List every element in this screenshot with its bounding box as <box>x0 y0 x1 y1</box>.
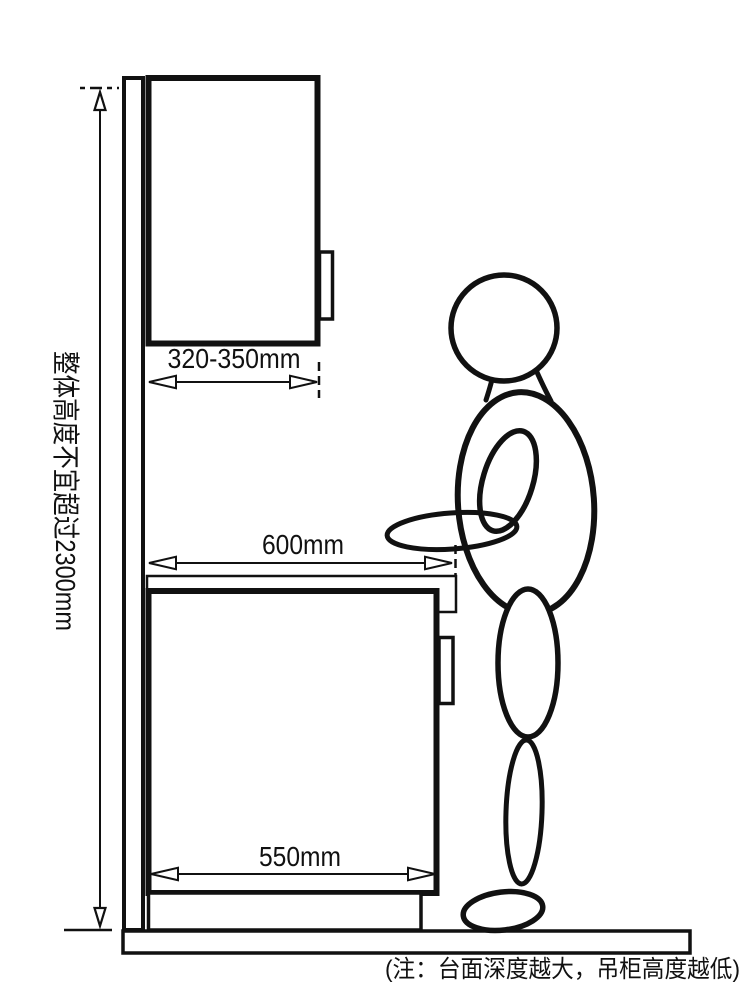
diagram-canvas: 整体高度不宜超过2300mm 320-350mm 600mm 550m <box>0 0 749 1000</box>
overall-height-arrow-down <box>95 908 106 926</box>
wall-cabinet-depth-label: 320-350mm <box>168 343 301 374</box>
figure-calf <box>503 739 544 884</box>
floor <box>123 931 690 953</box>
note-label: (注：台面深度越大，吊柜高度越低) <box>385 956 740 983</box>
plinth <box>149 893 422 930</box>
wall-cabinet-depth-arrow-left <box>149 376 176 388</box>
counter-depth-arrow-left <box>149 557 176 569</box>
wall-panel <box>124 78 143 930</box>
counter-depth-label: 600mm <box>262 529 344 560</box>
wall-cabinet-depth-arrow-right <box>290 376 317 388</box>
diagram-root: 整体高度不宜超过2300mm 320-350mm 600mm 550m <box>0 0 749 1000</box>
figure-head <box>451 275 557 381</box>
base-cabinet-depth-label: 550mm <box>259 841 341 872</box>
counter-depth-arrow-right <box>425 557 452 569</box>
base-cabinet-handle <box>439 638 453 704</box>
counter-depth-dimension: 600mm <box>149 529 456 577</box>
figure-foot <box>461 887 545 934</box>
overall-height-label: 整体高度不宜超过2300mm <box>50 351 81 631</box>
wall-cabinet-handle <box>320 252 333 319</box>
overall-height-dimension: 整体高度不宜超过2300mm <box>50 88 119 930</box>
overall-height-arrow-up <box>95 92 106 110</box>
wall-cabinet <box>149 78 318 344</box>
figure-thigh <box>498 589 558 737</box>
wall-cabinet-depth-dimension: 320-350mm <box>149 343 319 398</box>
